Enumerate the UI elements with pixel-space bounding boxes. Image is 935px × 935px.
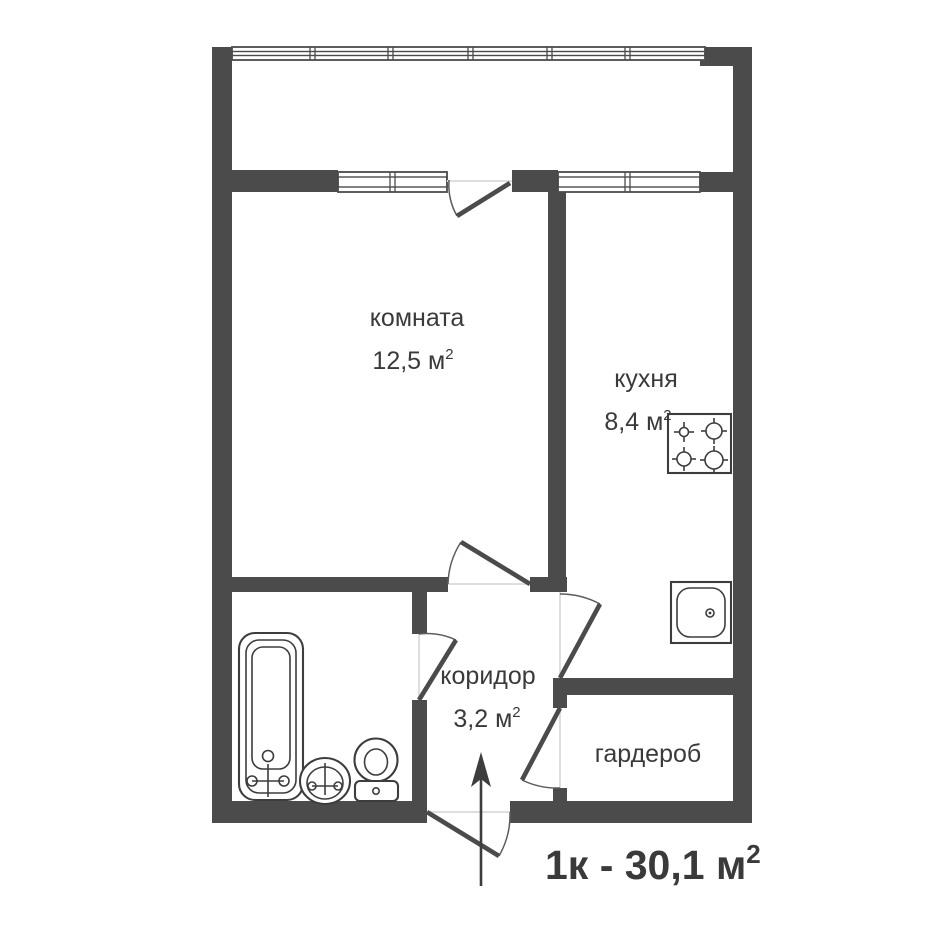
corridor-area: 3,2 м2 xyxy=(453,704,520,733)
wall-kitchen-window-side xyxy=(700,172,733,192)
wall-top-right-corner xyxy=(700,47,752,66)
wall-left xyxy=(212,47,232,823)
wall-balcony-room xyxy=(220,170,338,192)
door-swing-arc xyxy=(560,594,600,604)
entrance-door xyxy=(427,812,510,856)
room-area: 12,5 м2 xyxy=(372,346,453,375)
bathtub-icon xyxy=(239,633,303,800)
door-leaf xyxy=(427,812,499,856)
floor-plan-drawing: комната 12,5 м2 кухня 8,4 м2 коридор 3,2… xyxy=(0,0,935,935)
wardrobe-door xyxy=(522,708,560,788)
entrance-arrow-icon xyxy=(471,752,491,886)
balcony-glazing xyxy=(232,47,705,60)
balcony-door xyxy=(447,180,512,216)
door-leaf xyxy=(560,604,600,678)
door-swing-arc xyxy=(419,634,456,640)
door-swing-arc xyxy=(448,542,461,584)
room-label: комната xyxy=(370,304,465,332)
door-swing-arc xyxy=(499,812,510,856)
door-leaf xyxy=(457,183,510,216)
door-leaf xyxy=(522,708,560,780)
wall-corridor-top-post xyxy=(530,577,567,592)
door-leaf xyxy=(461,542,530,584)
toilet-icon xyxy=(355,739,399,802)
floor-plan-page: комната 12,5 м2 кухня 8,4 м2 коридор 3,2… xyxy=(0,0,935,935)
wall-room-bathroom xyxy=(220,577,448,592)
wall-room-kitchen-divider xyxy=(548,188,566,592)
wall-corridor-right-bottom-post xyxy=(553,788,567,803)
room-window xyxy=(338,172,447,192)
total-area-label: 1к - 30,1 м2 xyxy=(545,839,761,888)
kitchen-label: кухня xyxy=(614,365,678,393)
door-swing-arc xyxy=(522,780,560,788)
wardrobe-label: гардероб xyxy=(595,740,701,768)
door-swing-arc xyxy=(449,180,457,216)
kitchen-sink-icon xyxy=(671,582,731,643)
wall-kitchen-wardrobe-divider xyxy=(553,678,733,695)
wall-corridor-left-upper xyxy=(412,590,427,634)
corridor-label: коридор xyxy=(440,662,535,690)
wall-bottom-right xyxy=(510,801,752,823)
wall-right xyxy=(733,47,752,823)
stove-icon xyxy=(668,414,731,474)
kitchen-window xyxy=(558,172,700,192)
kitchen-area: 8,4 м2 xyxy=(604,407,671,436)
room-door xyxy=(448,542,530,584)
bathroom-sink-icon xyxy=(300,758,350,804)
wall-corridor-left-lower xyxy=(412,700,427,803)
kitchen-door xyxy=(560,592,600,678)
